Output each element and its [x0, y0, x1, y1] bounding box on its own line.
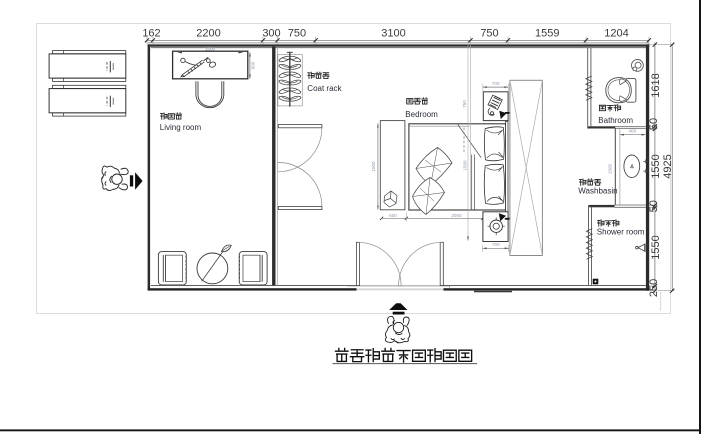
svg-text:1550: 1550: [650, 235, 662, 259]
svg-text:Bathroom: Bathroom: [598, 116, 633, 125]
svg-text:2000: 2000: [451, 213, 462, 218]
svg-text:750: 750: [462, 100, 467, 108]
svg-text:Shower room: Shower room: [597, 228, 645, 237]
svg-text:400: 400: [628, 128, 636, 133]
svg-text:50: 50: [648, 200, 660, 212]
svg-text:Washbasin: Washbasin: [578, 187, 617, 196]
svg-text:250: 250: [648, 279, 660, 297]
svg-text:50: 50: [648, 118, 660, 130]
svg-text:2200: 2200: [196, 27, 220, 39]
svg-text:1500: 1500: [462, 160, 467, 171]
svg-text:1500: 1500: [608, 163, 613, 174]
svg-text:750: 750: [288, 27, 306, 39]
svg-text:1500: 1500: [371, 161, 376, 172]
svg-text:700: 700: [492, 242, 500, 247]
svg-text:600: 600: [389, 213, 397, 218]
svg-text:Bedroom: Bedroom: [405, 110, 438, 119]
svg-text:1500: 1500: [205, 47, 216, 52]
svg-text:600: 600: [251, 61, 256, 69]
svg-text:300: 300: [262, 27, 280, 39]
svg-text:Living room: Living room: [160, 123, 202, 132]
svg-text:1559: 1559: [535, 27, 559, 39]
svg-text:750: 750: [480, 27, 498, 39]
svg-text:700: 700: [492, 81, 500, 86]
svg-text:4925: 4925: [662, 154, 674, 178]
svg-text:1618: 1618: [650, 73, 662, 97]
svg-text:162: 162: [142, 27, 160, 39]
svg-text:3100: 3100: [381, 27, 405, 39]
svg-text:Coat rack: Coat rack: [307, 84, 342, 93]
svg-text:1550: 1550: [650, 154, 662, 178]
svg-text:1204: 1204: [604, 27, 628, 39]
